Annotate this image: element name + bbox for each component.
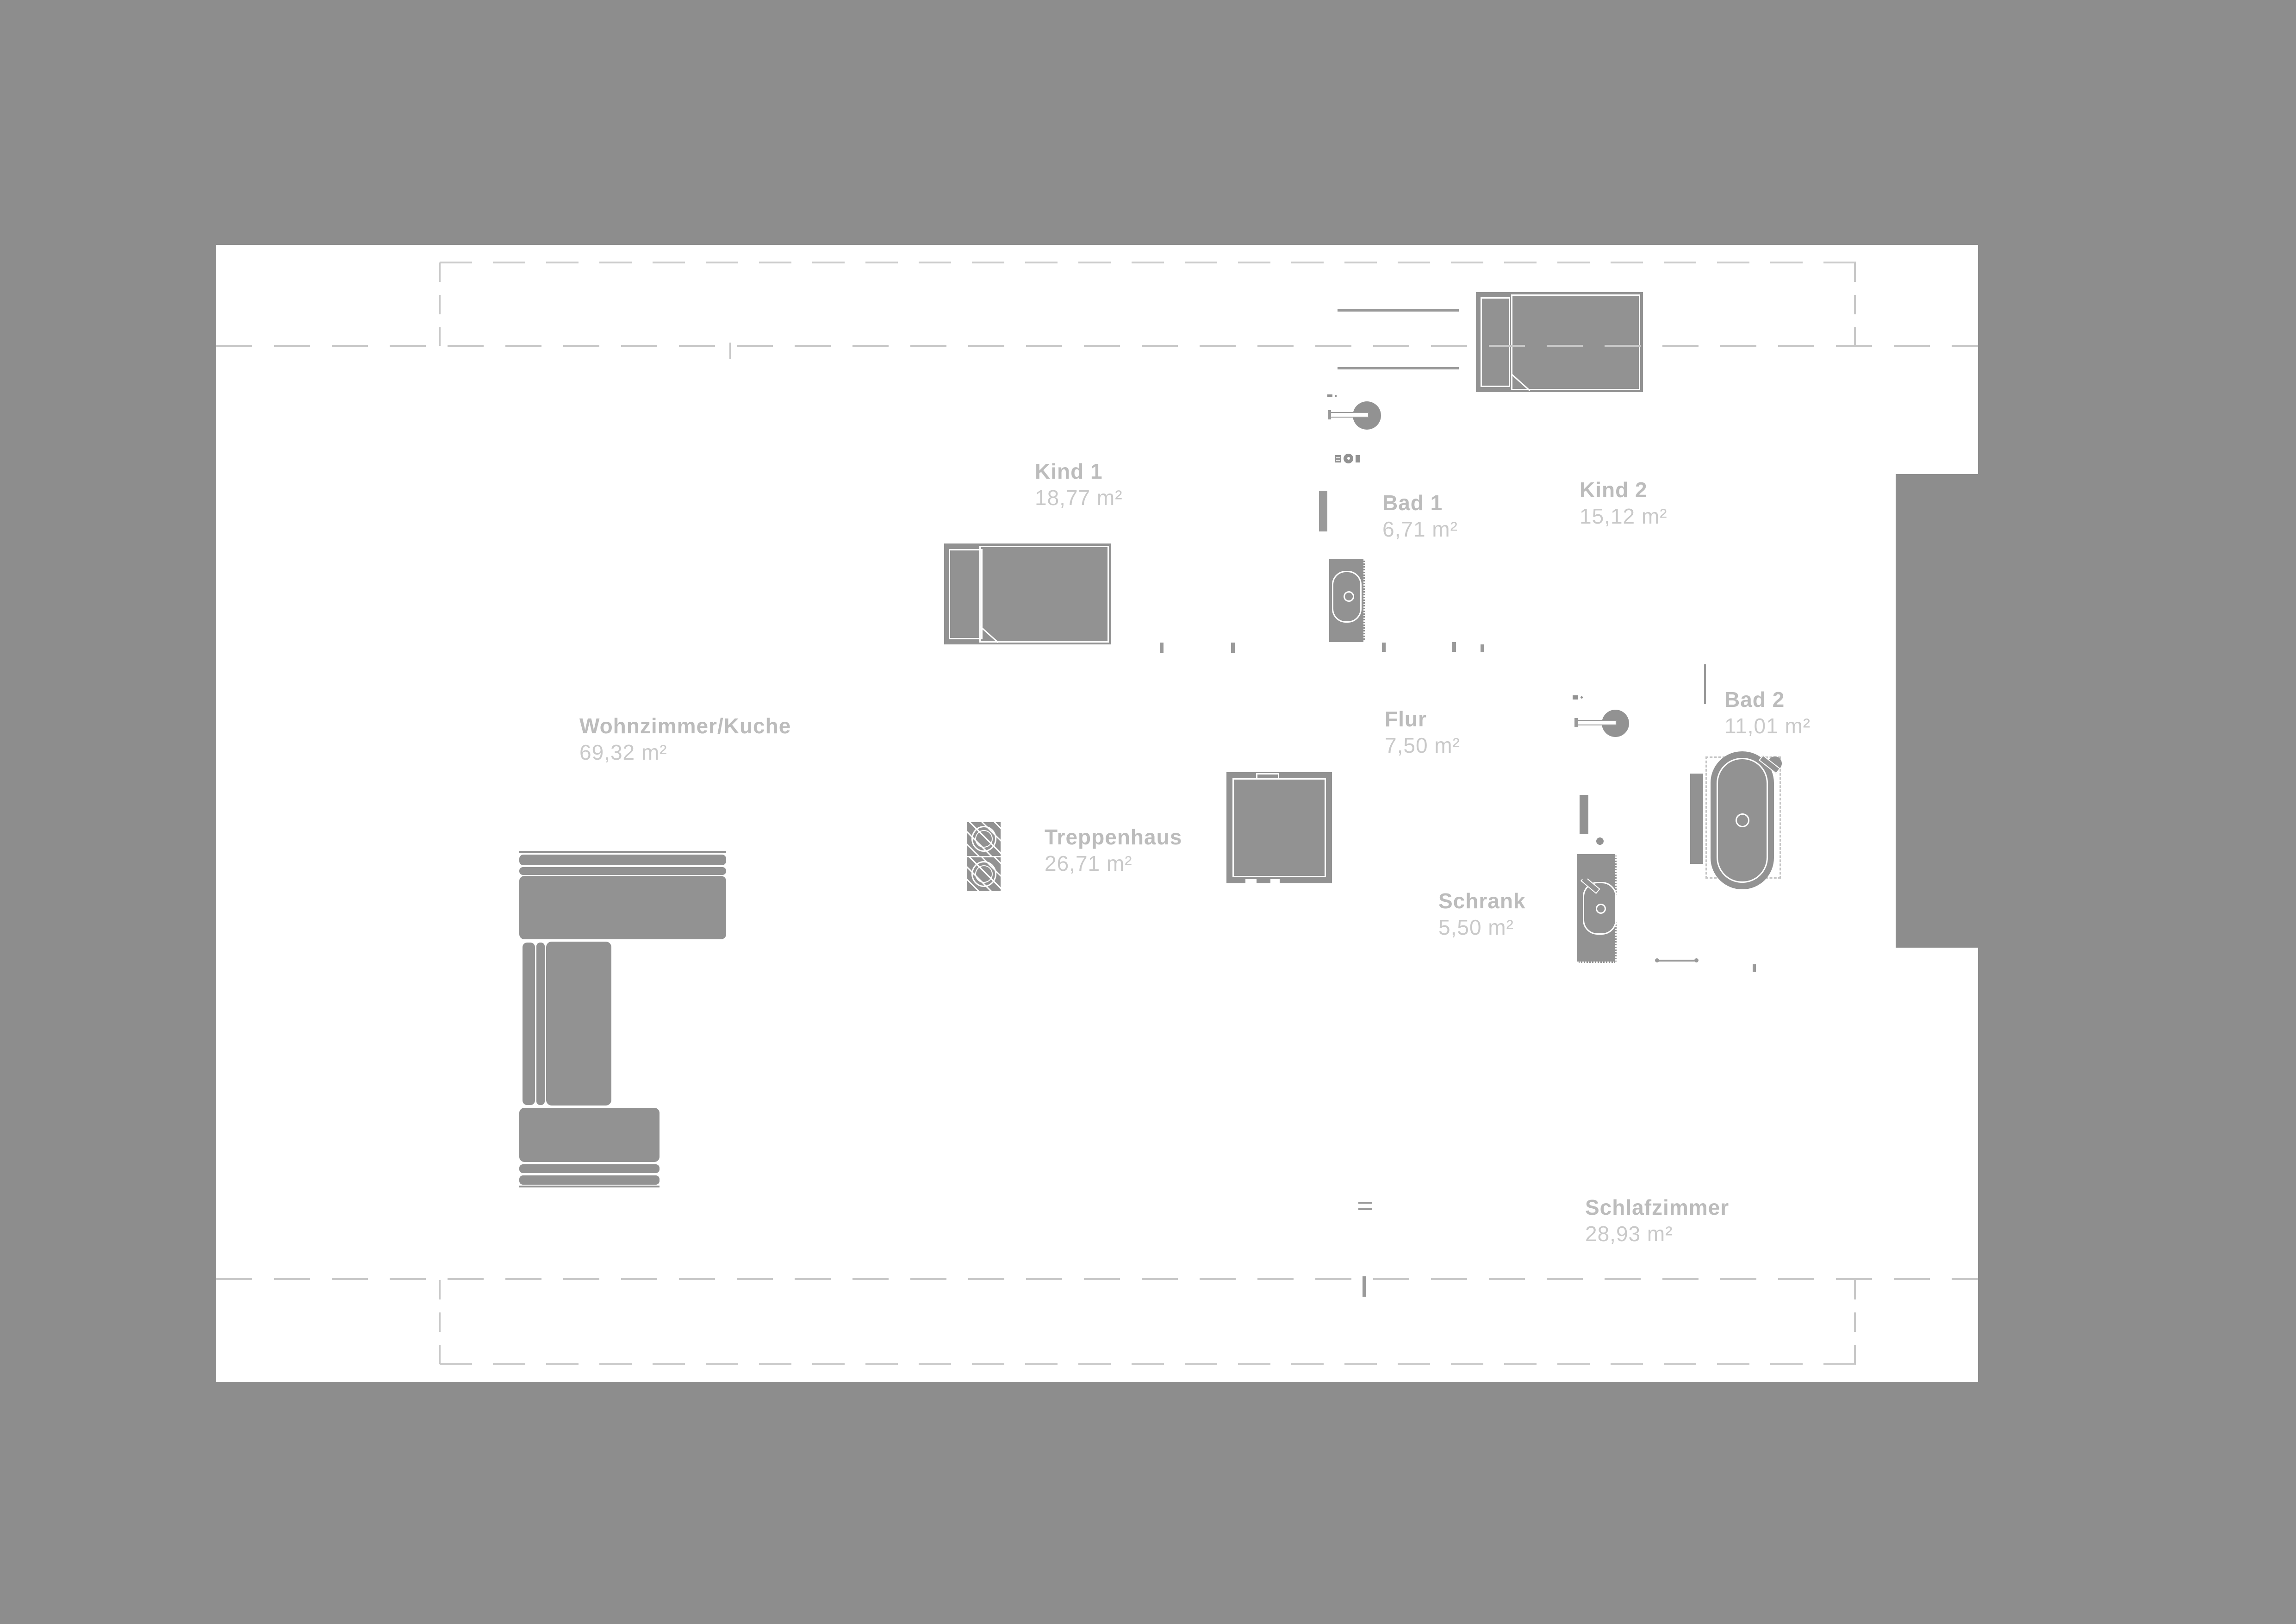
- room-area: 26,71 m²: [1045, 850, 1182, 877]
- bathtub-drain: [1736, 813, 1749, 827]
- room-area: 11,01 m²: [1724, 713, 1811, 739]
- small-lamp-icon: [1573, 694, 1585, 701]
- towel-bar-flur: [1577, 720, 1617, 725]
- towel-bar-bad-1: [1330, 412, 1369, 418]
- dimension-line: [1657, 960, 1698, 962]
- dryer-icon: [967, 857, 1001, 891]
- room-name: Schrank: [1438, 888, 1526, 914]
- small-dot: [1335, 395, 1337, 397]
- roof-outline-bottom: [440, 1363, 1856, 1365]
- room-name: Bad 1: [1382, 490, 1458, 516]
- towel-bar-end: [1328, 410, 1331, 419]
- washbasin-drain: [1596, 904, 1606, 914]
- label-kind-2: Kind 2 15,12 m²: [1580, 477, 1668, 530]
- door-leaf-bad-1: [1319, 491, 1327, 531]
- wall-line: [1704, 664, 1706, 704]
- room-name: Kind 1: [1035, 458, 1123, 485]
- roof-outline-top: [440, 262, 1856, 263]
- dimension-dot: [1694, 958, 1699, 962]
- bed-kind-1: [944, 543, 1111, 644]
- label-schrank: Schrank 5,50 m²: [1438, 888, 1526, 941]
- bathtub-bad-2: [1711, 751, 1774, 889]
- wardrobe-door: [1580, 795, 1588, 834]
- roof-outline-right: [1854, 262, 1856, 346]
- floorplan-canvas: Kind 1 18,77 m² Bad 1 6,71 m² Kind 2 15,…: [0, 0, 2296, 1624]
- toilet-bad-1: [1329, 559, 1365, 642]
- room-area: 15,12 m²: [1580, 503, 1668, 530]
- room-area: 69,32 m²: [579, 739, 791, 766]
- ceiling-lamp-icon: [1335, 453, 1360, 465]
- bed-kind-2: [1476, 292, 1643, 392]
- room-name: Wohnzimmer/Kuche: [579, 713, 791, 739]
- wall-stub: [1231, 643, 1235, 653]
- label-bad-2: Bad 2 11,01 m²: [1724, 687, 1811, 739]
- toilet-drain: [1344, 591, 1354, 602]
- wall-stub: [1481, 644, 1484, 652]
- label-bad-1: Bad 1 6,71 m²: [1382, 490, 1458, 543]
- label-wohnzimmer-kuche: Wohnzimmer/Kuche 69,32 m²: [579, 713, 791, 766]
- label-schlafzimmer: Schlafzimmer 28,93 m²: [1585, 1194, 1729, 1247]
- bed-mattress: [1511, 294, 1640, 390]
- washer-icon: [967, 822, 1001, 856]
- towel-bar-end: [1574, 718, 1578, 727]
- door-knob: [1595, 836, 1605, 846]
- wall-stub: [1452, 642, 1456, 652]
- bed-mattress: [979, 546, 1109, 643]
- room-name: Flur: [1385, 706, 1460, 732]
- wall-line: [1338, 309, 1459, 312]
- room-area: 18,77 m²: [1035, 485, 1123, 511]
- roof-dashed-line-bottom: [216, 1278, 1978, 1280]
- faucet-knob: [1581, 873, 1588, 880]
- roof-outline-left: [439, 262, 441, 346]
- wall-stub: [1160, 643, 1164, 653]
- wall-line: [1338, 367, 1459, 369]
- sofa-sectional: [519, 851, 726, 1187]
- roof-outline-right-b: [1854, 1280, 1856, 1364]
- bed-pillow: [1481, 297, 1510, 387]
- dimension-dot: [1655, 958, 1659, 962]
- room-area: 6,71 m²: [1382, 516, 1458, 543]
- roof-dashed-line-top: [216, 345, 1978, 347]
- room-name: Treppenhaus: [1045, 824, 1182, 850]
- room-name: Schlafzimmer: [1585, 1194, 1729, 1221]
- room-area: 28,93 m²: [1585, 1221, 1729, 1247]
- room-area: 7,50 m²: [1385, 732, 1460, 759]
- small-symbol: [1327, 394, 1332, 397]
- right-notch: [1896, 474, 1978, 948]
- wall-tick: [1358, 1208, 1372, 1210]
- room-name: Bad 2: [1724, 687, 1811, 713]
- wardrobe-door-line: [1593, 806, 1593, 823]
- radiator-bad-2: [1690, 774, 1703, 864]
- wall-stub: [1382, 643, 1386, 652]
- label-treppenhaus: Treppenhaus 26,71 m²: [1045, 824, 1182, 877]
- label-flur: Flur 7,50 m²: [1385, 706, 1460, 759]
- bed-pillow: [949, 549, 983, 639]
- label-kind-1: Kind 1 18,77 m²: [1035, 458, 1123, 511]
- staircase-shaft: [1226, 772, 1332, 883]
- door-swing-line: [1329, 502, 1330, 534]
- room-name: Kind 2: [1580, 477, 1668, 503]
- wall-tick: [729, 343, 731, 359]
- room-area: 5,50 m²: [1438, 914, 1526, 941]
- wall-stub: [1753, 964, 1756, 972]
- wall-tick: [1358, 1202, 1372, 1204]
- washbasin-cabinet: [1577, 854, 1617, 963]
- roof-outline-left-b: [439, 1280, 441, 1364]
